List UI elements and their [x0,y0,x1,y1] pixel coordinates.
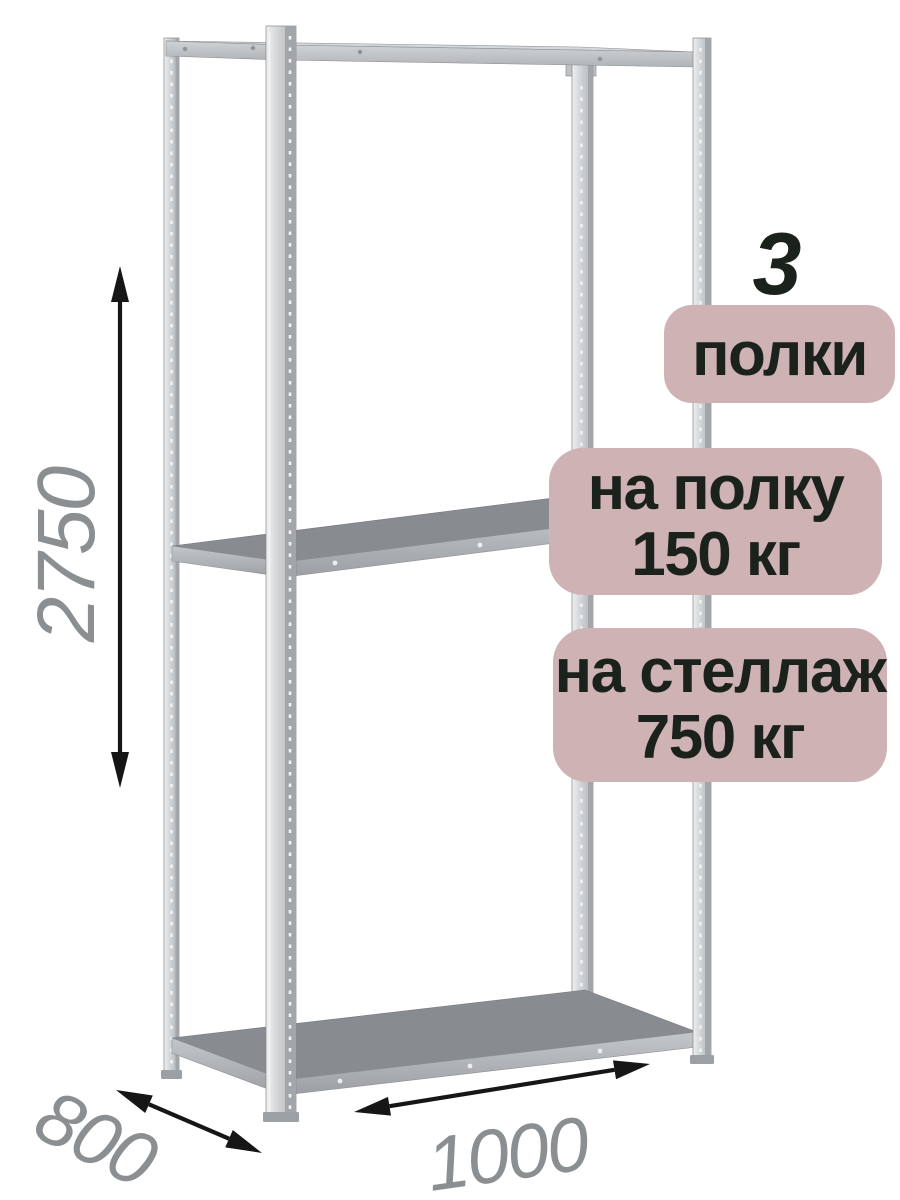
per-shelf-load-value: 150 кг [631,522,800,588]
rack-illustration [0,0,900,1200]
per-shelf-load-label: на полку [588,456,844,522]
per-rack-load-badge: на стеллаж 750 кг [553,628,887,782]
shelf-count-label: полки [692,319,867,390]
per-rack-load-label: на стеллаж [555,639,886,705]
shelf-count-badge: полки [664,305,895,403]
shelf-top [166,41,695,67]
post-front-left [263,26,299,1122]
per-shelf-load-badge: на полку 150 кг [549,448,882,595]
product-image: 2750 800 1000 3 полки на полку 150 кг на… [0,0,900,1200]
height-dimension-label: 2750 [17,430,117,680]
shelf-count-number: 3 [697,222,857,306]
shelf-bottom [172,990,697,1095]
per-rack-load-value: 750 кг [636,705,805,771]
